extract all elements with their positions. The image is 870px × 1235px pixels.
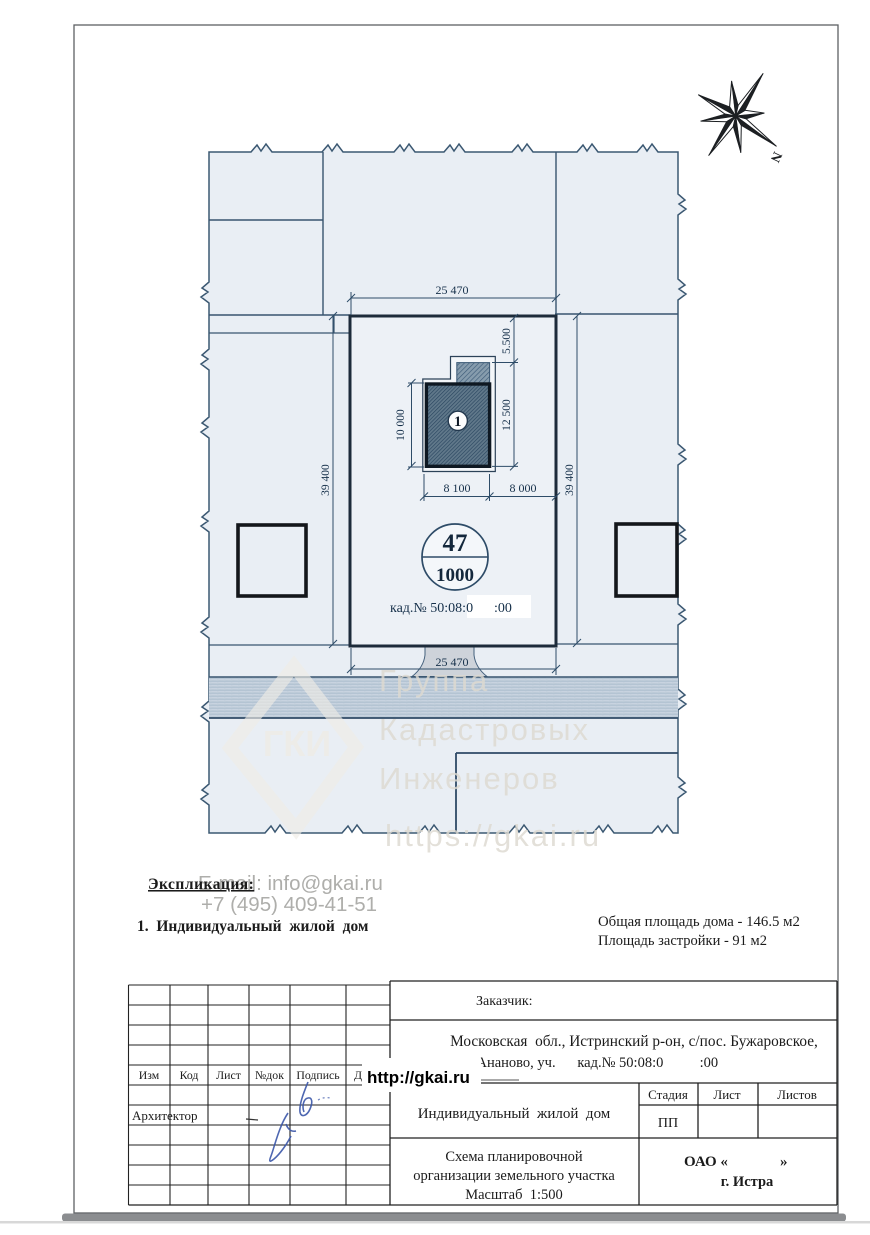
svg-text:1. Индивидуальный жилой дом: 1. Индивидуальный жилой дом	[137, 918, 369, 935]
svg-text:8 100: 8 100	[444, 481, 471, 495]
svg-text:Индивидуальный жилой дом: Индивидуальный жилой дом	[418, 1106, 611, 1122]
svg-text:39 400: 39 400	[320, 464, 332, 496]
svg-text:+7 (495) 409-41-51: +7 (495) 409-41-51	[201, 893, 377, 916]
svg-text:5.500: 5.500	[501, 328, 513, 354]
svg-text:д. Ананово, уч. кад.№ 50:: д. Ананово, уч. кад.№ 50:08:0 :00	[462, 1055, 718, 1071]
svg-text:Лист: Лист	[713, 1087, 741, 1102]
svg-text:https://gkai.ru: https://gkai.ru	[385, 818, 601, 853]
svg-text:Подпись: Подпись	[296, 1068, 340, 1082]
svg-text:Группа: Группа	[379, 663, 489, 698]
svg-text:Масштаб 1:500: Масштаб 1:500	[465, 1187, 563, 1203]
svg-text:Код: Код	[180, 1068, 199, 1082]
svg-text:Общая площадь дома - 146.5 м2: Общая площадь дома - 146.5 м2	[598, 914, 800, 930]
svg-text:Лист: Лист	[216, 1068, 241, 1082]
svg-text:Листов: Листов	[777, 1087, 817, 1102]
svg-text:N: N	[768, 150, 786, 165]
svg-text:25 470: 25 470	[436, 283, 469, 297]
svg-text:кад.№ 50:08:0: кад.№ 50:08:0	[390, 601, 473, 616]
svg-text:Московская обл., Истринский р: Московская обл., Истринский р-он, с/пос.…	[450, 1033, 818, 1050]
svg-text:1: 1	[454, 414, 461, 430]
svg-text:»: »	[780, 1154, 788, 1170]
svg-text:Заказчик:: Заказчик:	[476, 994, 533, 1009]
svg-text:47: 47	[443, 530, 468, 557]
svg-text:Экспликация:: Экспликация:	[148, 876, 254, 893]
svg-text::00: :00	[494, 601, 512, 616]
svg-text:№док: №док	[255, 1068, 284, 1082]
svg-text:ГКИ: ГКИ	[263, 723, 331, 764]
svg-text:Кадастровых: Кадастровых	[379, 712, 590, 747]
svg-text:г. Истра: г. Истра	[721, 1174, 774, 1190]
svg-text:Площадь застройки - 91 м2: Площадь застройки - 91 м2	[598, 933, 767, 949]
svg-text:ПП: ПП	[658, 1116, 678, 1131]
svg-text:10 000: 10 000	[395, 409, 407, 441]
svg-text:1000: 1000	[436, 565, 474, 586]
svg-text:8 000: 8 000	[510, 481, 537, 495]
svg-text:39 400: 39 400	[564, 464, 576, 496]
svg-text:организации земельного участка: организации земельного участка	[413, 1168, 615, 1184]
svg-text:Архитектор: Архитектор	[132, 1108, 197, 1123]
svg-text:Стадия: Стадия	[648, 1087, 688, 1102]
svg-text:Изм: Изм	[139, 1068, 160, 1082]
svg-text:12 500: 12 500	[501, 399, 513, 431]
svg-text:Инженеров: Инженеров	[379, 761, 560, 796]
svg-text:Схема планировочной: Схема планировочной	[445, 1149, 583, 1165]
svg-text:ОАО «: ОАО «	[684, 1154, 728, 1170]
svg-text:http://gkai.ru: http://gkai.ru	[367, 1068, 470, 1087]
svg-text:Д: Д	[354, 1068, 362, 1082]
